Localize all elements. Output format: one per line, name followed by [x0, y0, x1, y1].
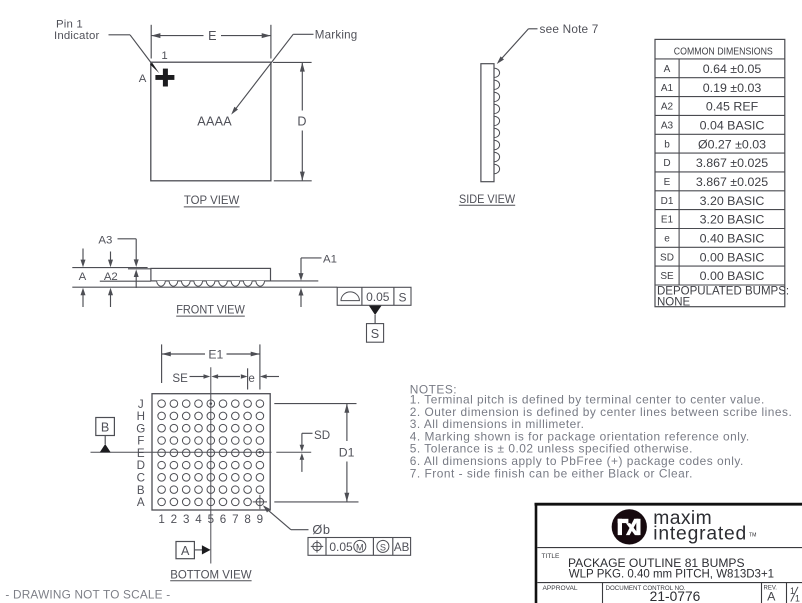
svg-text:- DRAWING NOT TO SCALE -: - DRAWING NOT TO SCALE - — [5, 588, 170, 602]
svg-text:3.867 ±0.025: 3.867 ±0.025 — [696, 156, 768, 170]
svg-text:WLP PKG. 0.40 mm PITCH, W813D3: WLP PKG. 0.40 mm PITCH, W813D3+1 — [569, 568, 774, 580]
svg-text:7: 7 — [232, 513, 238, 526]
svg-text:NONE: NONE — [657, 296, 691, 308]
svg-text:3.20 BASIC: 3.20 BASIC — [700, 213, 765, 227]
svg-text:E1: E1 — [661, 215, 674, 226]
svg-text:A2: A2 — [104, 271, 118, 283]
svg-text:Øb: Øb — [312, 522, 330, 537]
svg-text:0.40 BASIC: 0.40 BASIC — [700, 232, 765, 246]
svg-text:8: 8 — [244, 513, 250, 526]
svg-text:21-0776: 21-0776 — [650, 589, 701, 603]
svg-text:SD: SD — [660, 252, 674, 263]
svg-text:AB: AB — [394, 541, 410, 554]
svg-text:0.00 BASIC: 0.00 BASIC — [700, 250, 765, 264]
svg-text:1: 1 — [795, 594, 800, 603]
svg-text:A: A — [79, 271, 87, 283]
svg-text:9: 9 — [257, 513, 263, 526]
svg-text:Indicator: Indicator — [54, 30, 100, 42]
svg-text:BOTTOM VIEW: BOTTOM VIEW — [170, 567, 252, 581]
svg-text:0.04 BASIC: 0.04 BASIC — [700, 118, 765, 132]
svg-text:A1: A1 — [323, 253, 337, 265]
svg-text:H: H — [137, 410, 145, 423]
svg-text:Pin 1: Pin 1 — [56, 18, 83, 30]
svg-text:SD: SD — [314, 429, 330, 442]
svg-text:S: S — [380, 542, 386, 552]
svg-text:A3: A3 — [661, 120, 674, 131]
svg-text:APPROVAL: APPROVAL — [543, 585, 578, 592]
svg-text:e: e — [664, 234, 670, 245]
svg-text:COMMON DIMENSIONS: COMMON DIMENSIONS — [674, 46, 773, 57]
svg-text:D: D — [663, 158, 670, 169]
svg-text:TITLE: TITLE — [542, 553, 561, 560]
svg-text:D: D — [297, 115, 306, 129]
svg-text:M: M — [356, 542, 364, 552]
svg-text:AAAA: AAAA — [197, 114, 232, 128]
svg-text:0.19 ±0.03: 0.19 ±0.03 — [703, 81, 762, 95]
svg-text:6: 6 — [220, 513, 226, 526]
svg-text:SE: SE — [172, 372, 188, 385]
svg-text:A: A — [137, 496, 145, 509]
svg-text:B: B — [137, 484, 145, 497]
svg-text:A: A — [664, 64, 671, 75]
svg-text:0.64 ±0.05: 0.64 ±0.05 — [703, 62, 762, 76]
svg-text:G: G — [136, 422, 145, 435]
svg-text:A: A — [139, 73, 147, 85]
svg-text:e: e — [248, 372, 254, 385]
svg-text:3.20 BASIC: 3.20 BASIC — [700, 194, 765, 208]
svg-text:Marking: Marking — [315, 28, 358, 41]
svg-text:D1: D1 — [339, 446, 355, 460]
svg-text:4: 4 — [195, 513, 202, 526]
svg-text:E: E — [208, 29, 216, 43]
svg-text:3.867 ±0.025: 3.867 ±0.025 — [696, 175, 768, 189]
svg-text:0.00 BASIC: 0.00 BASIC — [700, 269, 765, 283]
svg-text:F: F — [137, 435, 144, 448]
svg-text:7. Front - side finish can be: 7. Front - side finish can be either Bla… — [410, 466, 693, 480]
svg-text:3: 3 — [183, 513, 189, 526]
svg-text:E1: E1 — [208, 347, 223, 361]
svg-text:D: D — [137, 459, 145, 472]
svg-text:FRONT VIEW: FRONT VIEW — [176, 302, 245, 316]
svg-text:SIDE VIEW: SIDE VIEW — [459, 192, 515, 206]
svg-text:A3: A3 — [98, 234, 112, 246]
svg-text:0.45 REF: 0.45 REF — [706, 100, 759, 114]
svg-text:b: b — [664, 139, 670, 150]
svg-text:1: 1 — [158, 513, 164, 526]
svg-text:2: 2 — [171, 513, 177, 526]
svg-text:A: A — [767, 589, 776, 603]
svg-text:C: C — [137, 472, 145, 485]
svg-text:TM: TM — [749, 533, 757, 539]
svg-text:E: E — [664, 177, 671, 188]
svg-text:J: J — [138, 398, 144, 411]
svg-text:integrated: integrated — [653, 523, 747, 544]
svg-text:A2: A2 — [661, 102, 674, 113]
svg-text:S: S — [371, 327, 379, 341]
svg-text:A1: A1 — [661, 83, 674, 94]
svg-text:TOP VIEW: TOP VIEW — [184, 193, 240, 207]
svg-text:see Note 7: see Note 7 — [540, 22, 599, 36]
svg-text:A: A — [181, 544, 190, 558]
svg-text:S: S — [398, 290, 406, 304]
svg-text:0.05: 0.05 — [329, 540, 353, 554]
svg-text:B: B — [101, 421, 109, 435]
svg-text:0.05: 0.05 — [366, 290, 390, 304]
svg-text:E: E — [137, 447, 145, 460]
svg-text:1: 1 — [161, 50, 167, 62]
svg-text:D1: D1 — [661, 196, 674, 207]
svg-text:SE: SE — [660, 271, 674, 282]
svg-text:Ø0.27 ±0.03: Ø0.27 ±0.03 — [698, 137, 766, 151]
